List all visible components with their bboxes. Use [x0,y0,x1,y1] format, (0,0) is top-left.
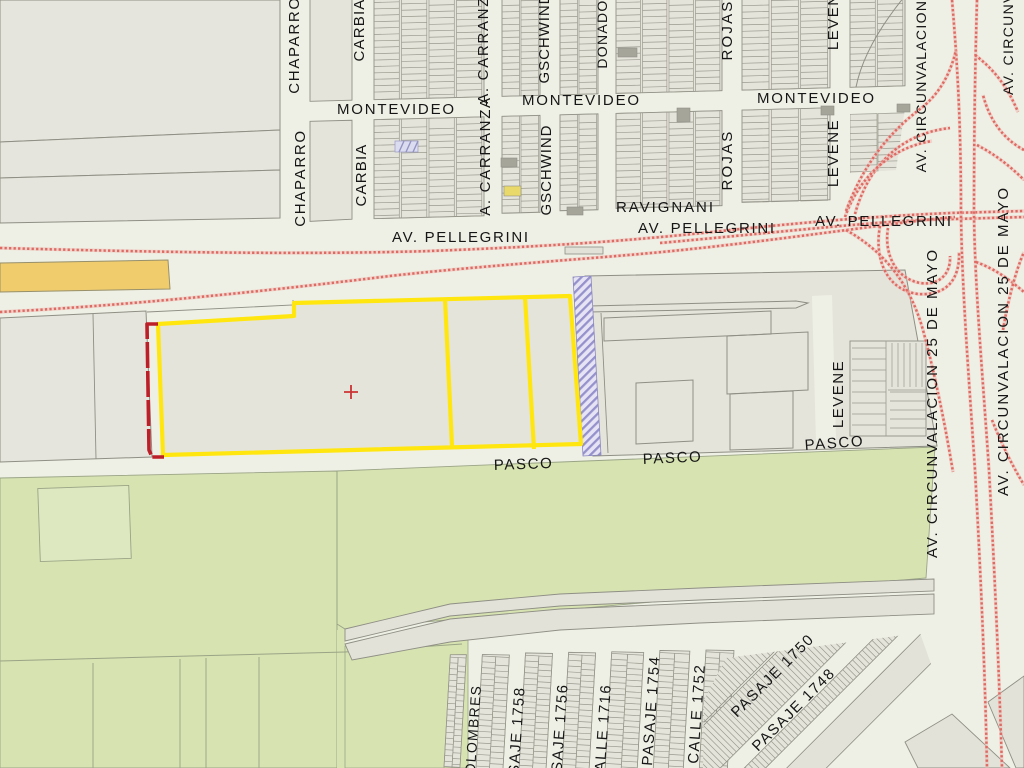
svg-text:LEVENE: LEVENE [825,119,842,187]
svg-text:PASCO: PASCO [642,448,702,468]
svg-text:AV. CIRCUNVALACION 25 DE MAYO: AV. CIRCUNVALACION 25 DE MAYO [995,186,1012,496]
svg-text:MONTEVIDEO: MONTEVIDEO [757,90,876,107]
svg-text:A. CARRANZA: A. CARRANZA [477,96,494,216]
svg-text:MONTEVIDEO: MONTEVIDEO [337,101,456,118]
svg-text:AV. PELLEGRINI: AV. PELLEGRINI [638,220,776,237]
svg-text:GSCHWIND: GSCHWIND [536,0,553,83]
svg-text:CHAPARRO: CHAPARRO [286,0,303,94]
svg-text:A. CARRANZA: A. CARRANZA [475,0,492,104]
svg-text:LEVENE: LEVENE [825,0,842,50]
svg-text:GSCHWIND: GSCHWIND [538,125,555,216]
svg-text:ROJAS: ROJAS [719,129,736,190]
svg-text:DONADO: DONADO [594,0,610,69]
svg-text:ROJAS: ROJAS [719,0,736,61]
svg-text:CHAPARRO: CHAPARRO [292,129,309,227]
svg-text:CARBIA: CARBIA [353,143,370,206]
svg-text:AV. CIRCUNVALACION 25 DE MAYO: AV. CIRCUNVALACION 25 DE MAYO [924,248,941,558]
svg-text:PASCO: PASCO [494,455,554,474]
svg-text:AV. CIRCUNVALACION: AV. CIRCUNVALACION [913,0,929,172]
svg-text:AV. CIRCUNVALACION: AV. CIRCUNVALACION [1000,0,1016,95]
svg-text:CARBIA: CARBIA [351,0,368,62]
svg-text:MONTEVIDEO: MONTEVIDEO [522,92,641,109]
svg-text:LEVENE: LEVENE [830,360,847,428]
svg-text:RAVIGNANI: RAVIGNANI [616,199,715,216]
svg-text:AV. PELLEGRINI: AV. PELLEGRINI [392,229,530,246]
svg-text:AV. PELLEGRINI: AV. PELLEGRINI [815,213,953,230]
